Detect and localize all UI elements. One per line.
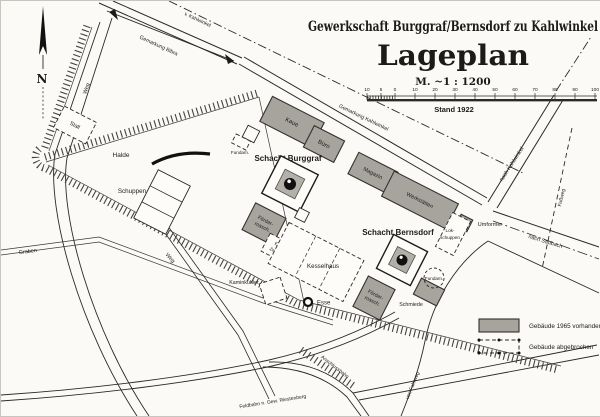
road-top-edge-a	[99, 3, 237, 64]
scale-number: 50	[492, 87, 498, 93]
scale-number: 70	[532, 87, 538, 93]
scale-number: 0	[394, 87, 397, 93]
legend-dot-icon	[478, 339, 481, 342]
label-lokschuppen-line2: schuppen	[440, 235, 460, 240]
west-road-edge-a	[54, 22, 137, 416]
plan-title: Lageplan	[377, 39, 529, 72]
building-kaminkuehler	[259, 277, 287, 305]
foerdermaschine-2-outline	[353, 276, 395, 320]
road-kahlwinkel-edge-b	[497, 100, 563, 208]
legend-dot-icon	[518, 352, 521, 355]
label-graben: Graben	[18, 248, 37, 256]
legend-swatch-existing	[479, 319, 519, 332]
plan-scale-text: M. ~1 : 1200	[415, 76, 490, 88]
legend-label-existing: Gebäude 1965 vorhanden	[529, 323, 600, 330]
kaminkuehler-outline	[259, 277, 287, 305]
map-svg: Gewerkschaft Burggraf/Bernsdorf zu Kahlw…	[1, 1, 600, 416]
building-werkstaetten: Werkstätten	[382, 171, 459, 229]
road-saubach-edge-b	[488, 241, 599, 293]
label-v-kahlwinkel: v. Kahlwinkel	[183, 11, 212, 29]
label-fundament-right: Fundam.	[425, 276, 443, 281]
feldbahn-track-a	[1, 312, 395, 395]
scale-bar-ticks	[367, 93, 595, 100]
label-anschlussbahn: Anschlussbahn	[319, 354, 350, 380]
scale-number: 100	[591, 87, 599, 93]
plan-company-title: Gewerkschaft Burggraf/Bernsdorf zu Kahlw…	[308, 19, 598, 35]
east-track-a	[353, 345, 597, 393]
anschlussbahn-embankment-hatch	[301, 350, 355, 387]
label-lokschuppen-line1: Lok-	[446, 228, 455, 233]
building-foerdermaschine-2: Förder- masch.	[353, 276, 395, 320]
site-plan-scan: Gewerkschaft Burggraf/Bernsdorf zu Kahlw…	[0, 0, 600, 417]
legend-dot-icon	[498, 352, 501, 355]
legend: Gebäude 1965 vorhanden Gebäude abgebroch…	[478, 319, 600, 355]
label-halde: Halde	[113, 152, 130, 159]
legend-dot-icon	[518, 339, 521, 342]
scale-number: 40	[472, 87, 478, 93]
label-nach-kahlwinkel: nach Kahlwinkel	[499, 146, 526, 183]
inner-weg-edge-a	[150, 212, 269, 399]
label-fundament-left: Fundam.	[231, 150, 249, 155]
label-kaminkuehler: Kaminkühler	[229, 280, 259, 286]
feldbahn-track-b	[1, 318, 399, 401]
scale-number: 30	[452, 87, 458, 93]
label-esse: Esse	[317, 301, 331, 307]
scale-number: 5	[380, 87, 383, 93]
scale-number: 10	[412, 87, 418, 93]
label-schmiede: Schmiede	[399, 302, 423, 308]
label-schuppen: Schuppen	[118, 188, 147, 195]
label-weg-2: Weg	[164, 252, 176, 264]
label-kesselhaus: Kesselhaus	[307, 263, 339, 270]
old-track-mark	[152, 153, 210, 164]
north-arrow: N	[37, 6, 48, 119]
scale-number: 60	[512, 87, 518, 93]
label-weg-1: Weg	[82, 82, 91, 95]
halde-hatch-corner	[36, 149, 46, 168]
north-arrow-head	[39, 6, 47, 55]
scale-number: 90	[572, 87, 578, 93]
scale-number: 20	[432, 87, 438, 93]
road-kahlwinkel-continuation	[556, 37, 591, 91]
label-umformer: Umformer	[478, 222, 503, 228]
legend-label-demolished: Gebäude abgebrochen	[529, 344, 594, 351]
label-nach-saubach: nach Saubach	[528, 234, 563, 250]
label-gemarkung-kahlwinkel: Gemarkung Kahlwinkel	[338, 103, 390, 132]
label-von-fahrweg: von Fahrweg	[405, 371, 421, 400]
legend-dot-icon	[498, 339, 501, 342]
scale-number: 10	[364, 87, 370, 93]
road-top-edge-b	[113, 1, 242, 58]
label-schacht-bernsdorf: Schacht Bernsdorf	[362, 228, 434, 237]
branch-track-a	[269, 362, 369, 416]
shaft-symbol-burggraf	[262, 156, 318, 212]
label-feldbahn: Feldbahn n. Gew. Riestenberg	[239, 394, 307, 411]
shaft-symbol-bernsdorf	[376, 234, 427, 285]
plan-date-stand: Stand 1922	[434, 105, 474, 114]
scale-bar: 10 5 0 10 20 30 40 50 60 70 80 90 100 St…	[364, 87, 599, 114]
legend-dot-icon	[478, 352, 481, 355]
esse-chimney-icon	[304, 298, 312, 306]
label-gemarkung-bibra: Gemarkung Bibra	[138, 35, 178, 58]
east-track-b	[359, 355, 599, 400]
north-label: N	[37, 72, 48, 86]
